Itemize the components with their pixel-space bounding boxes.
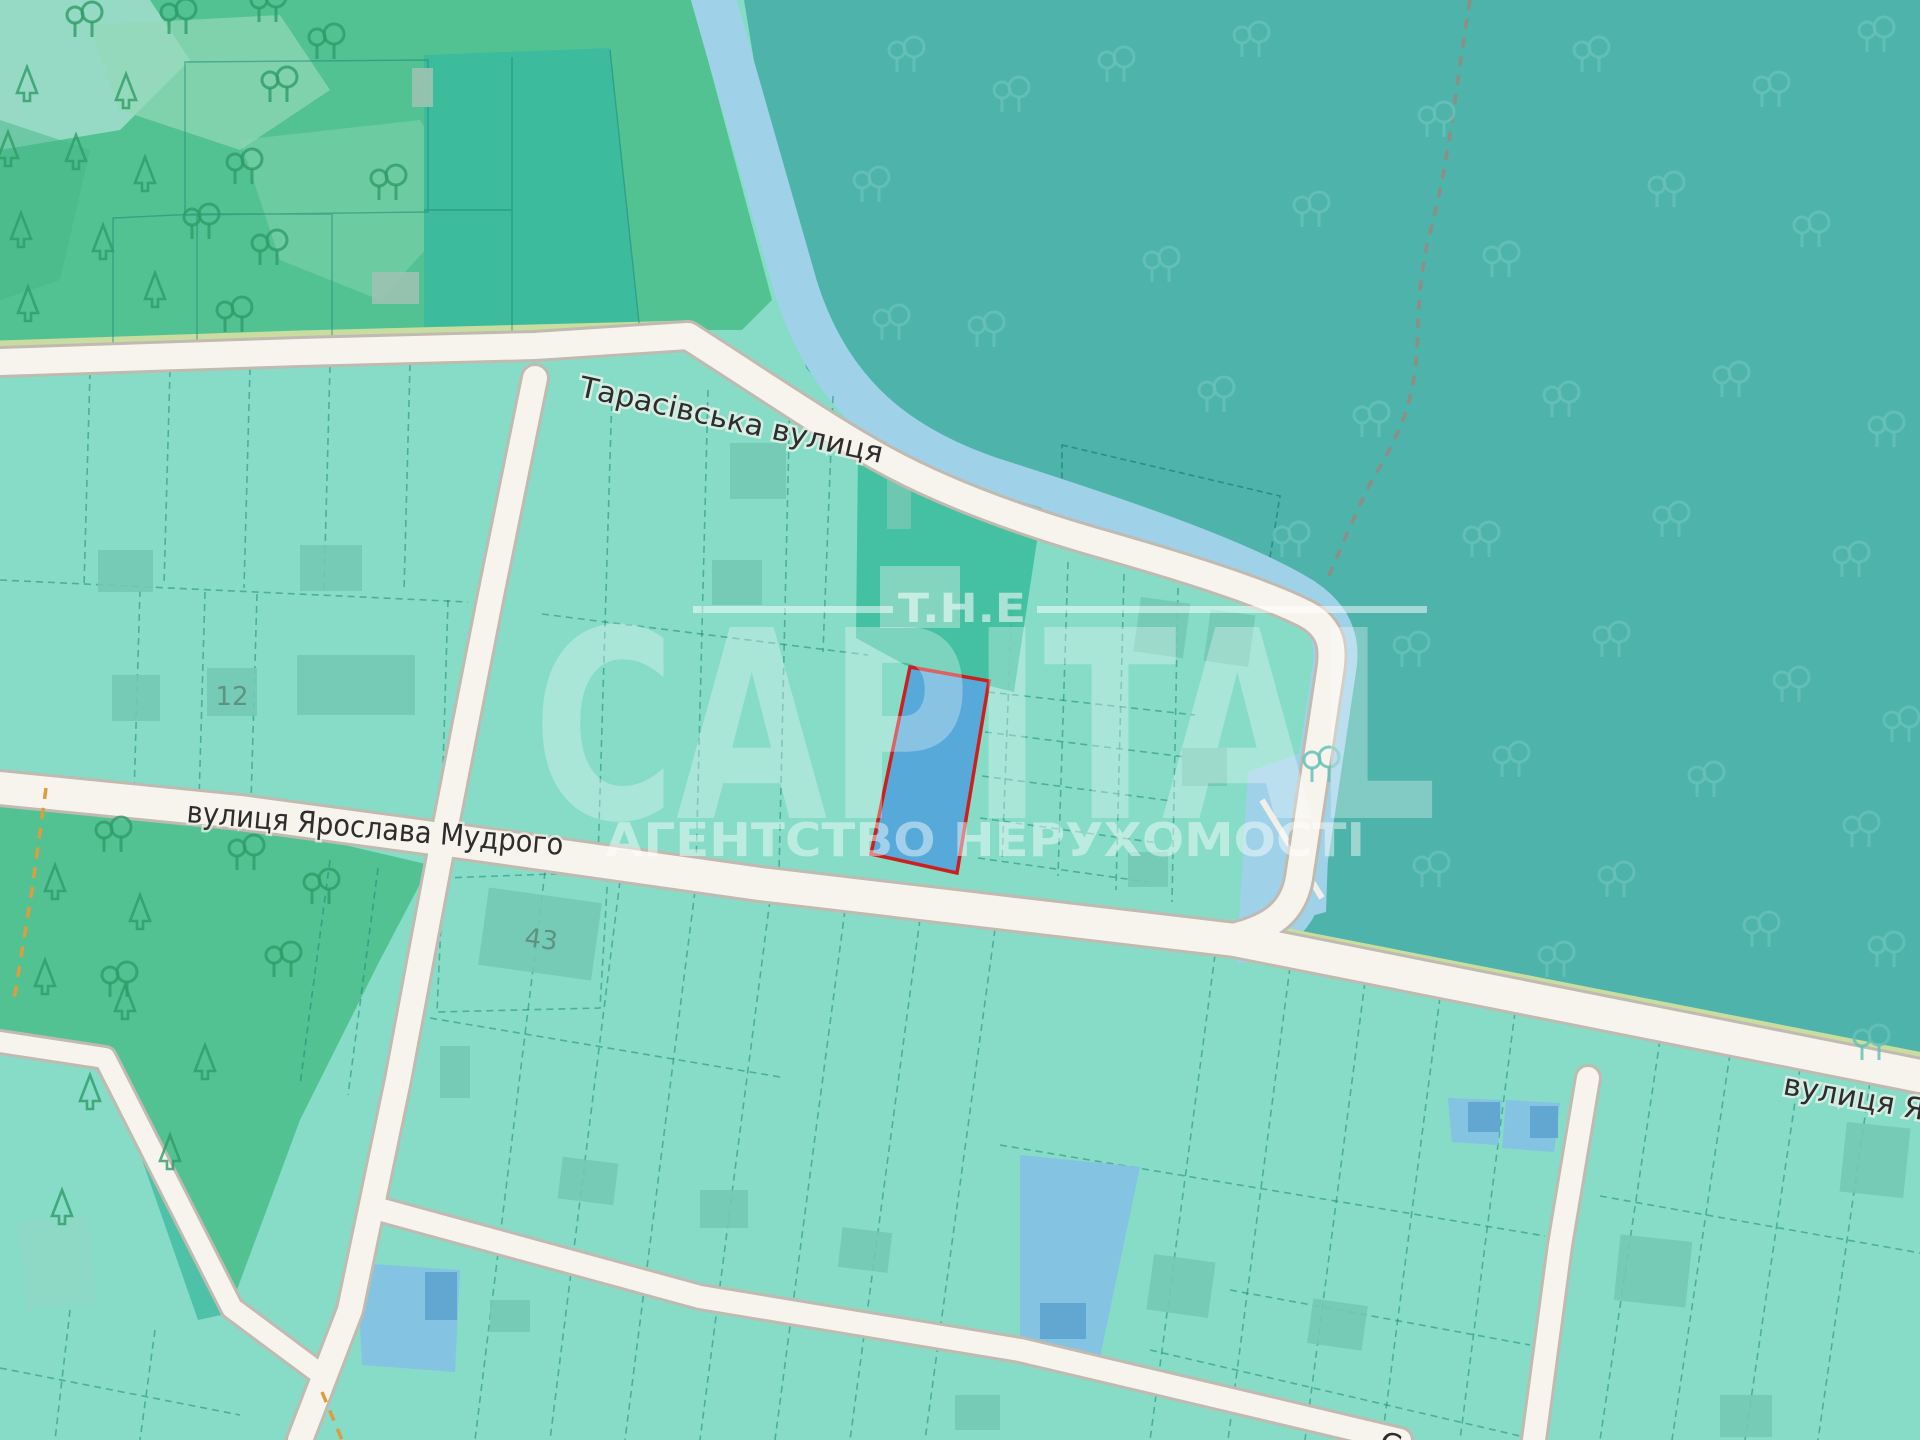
map-screenshot: Тарасівська вулиця вулиця Ярослава Мудро… — [0, 0, 1920, 1440]
watermark-subtitle: АГЕНТСТВО НЕРУХОМОСТІ — [605, 813, 1365, 867]
map-canvas[interactable]: Тарасівська вулиця вулиця Ярослава Мудро… — [0, 0, 1920, 1440]
parcel-number-12: 12 — [215, 682, 248, 712]
watermark: T.H.E CAPITAL АГЕНТСТВО НЕРУХОМОСТІ — [533, 575, 1438, 880]
parcel-number-43: 43 — [523, 923, 560, 957]
